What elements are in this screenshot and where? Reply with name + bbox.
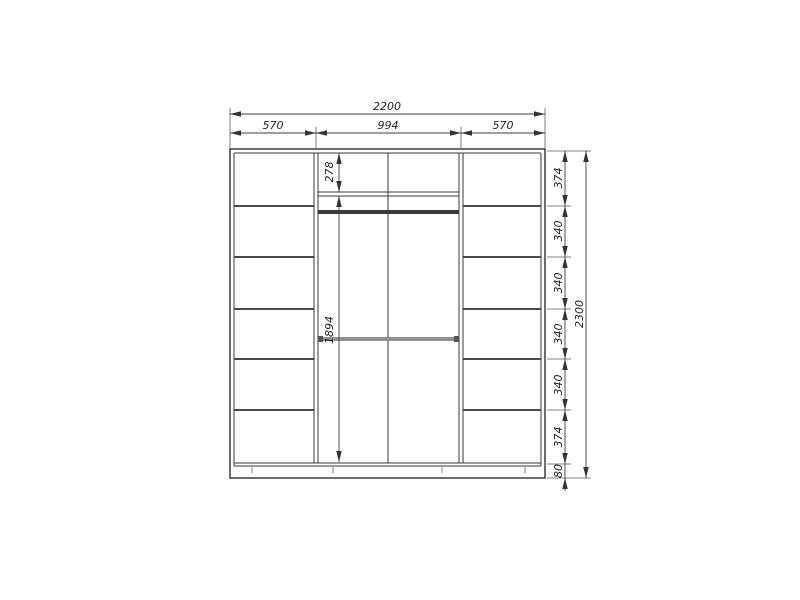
dim-label-left-width: 570 [263, 119, 284, 132]
dim-label-overall-width: 2200 [373, 100, 401, 113]
right-column-shelves [463, 206, 541, 410]
inner-partitions [314, 153, 463, 463]
wardrobe-dimension-drawing: 2200 570 994 570 374 340 340 340 340 374 [0, 0, 800, 600]
dim-label-seg-4: 340 [552, 324, 565, 345]
dim-label-seg-3: 340 [552, 273, 565, 294]
dim-label-plinth: 80 [552, 464, 565, 478]
dim-label-seg-1: 374 [552, 168, 565, 189]
dimension-middle-interior: 278 1894 [323, 153, 339, 462]
dimension-height-segments: 374 340 340 340 340 374 80 [552, 151, 565, 491]
dim-label-right-width: 570 [493, 119, 514, 132]
dim-label-overall-height: 2300 [573, 300, 586, 328]
dim-label-top-section: 278 [323, 162, 336, 183]
dim-label-hanging-section: 1894 [323, 316, 336, 344]
plinth-ticks [252, 467, 525, 473]
dim-label-seg-5: 340 [552, 375, 565, 396]
dimension-overall-height: 2300 [573, 151, 586, 478]
technical-drawing-canvas: 2200 570 994 570 374 340 340 340 340 374 [0, 0, 800, 600]
dim-label-seg-6: 374 [552, 427, 565, 448]
dim-label-middle-width: 994 [378, 119, 399, 132]
dim-label-seg-2: 340 [552, 221, 565, 242]
dimension-overall-width: 2200 [230, 100, 545, 114]
left-column-shelves [234, 206, 314, 410]
dimension-column-widths: 570 994 570 [230, 119, 545, 133]
